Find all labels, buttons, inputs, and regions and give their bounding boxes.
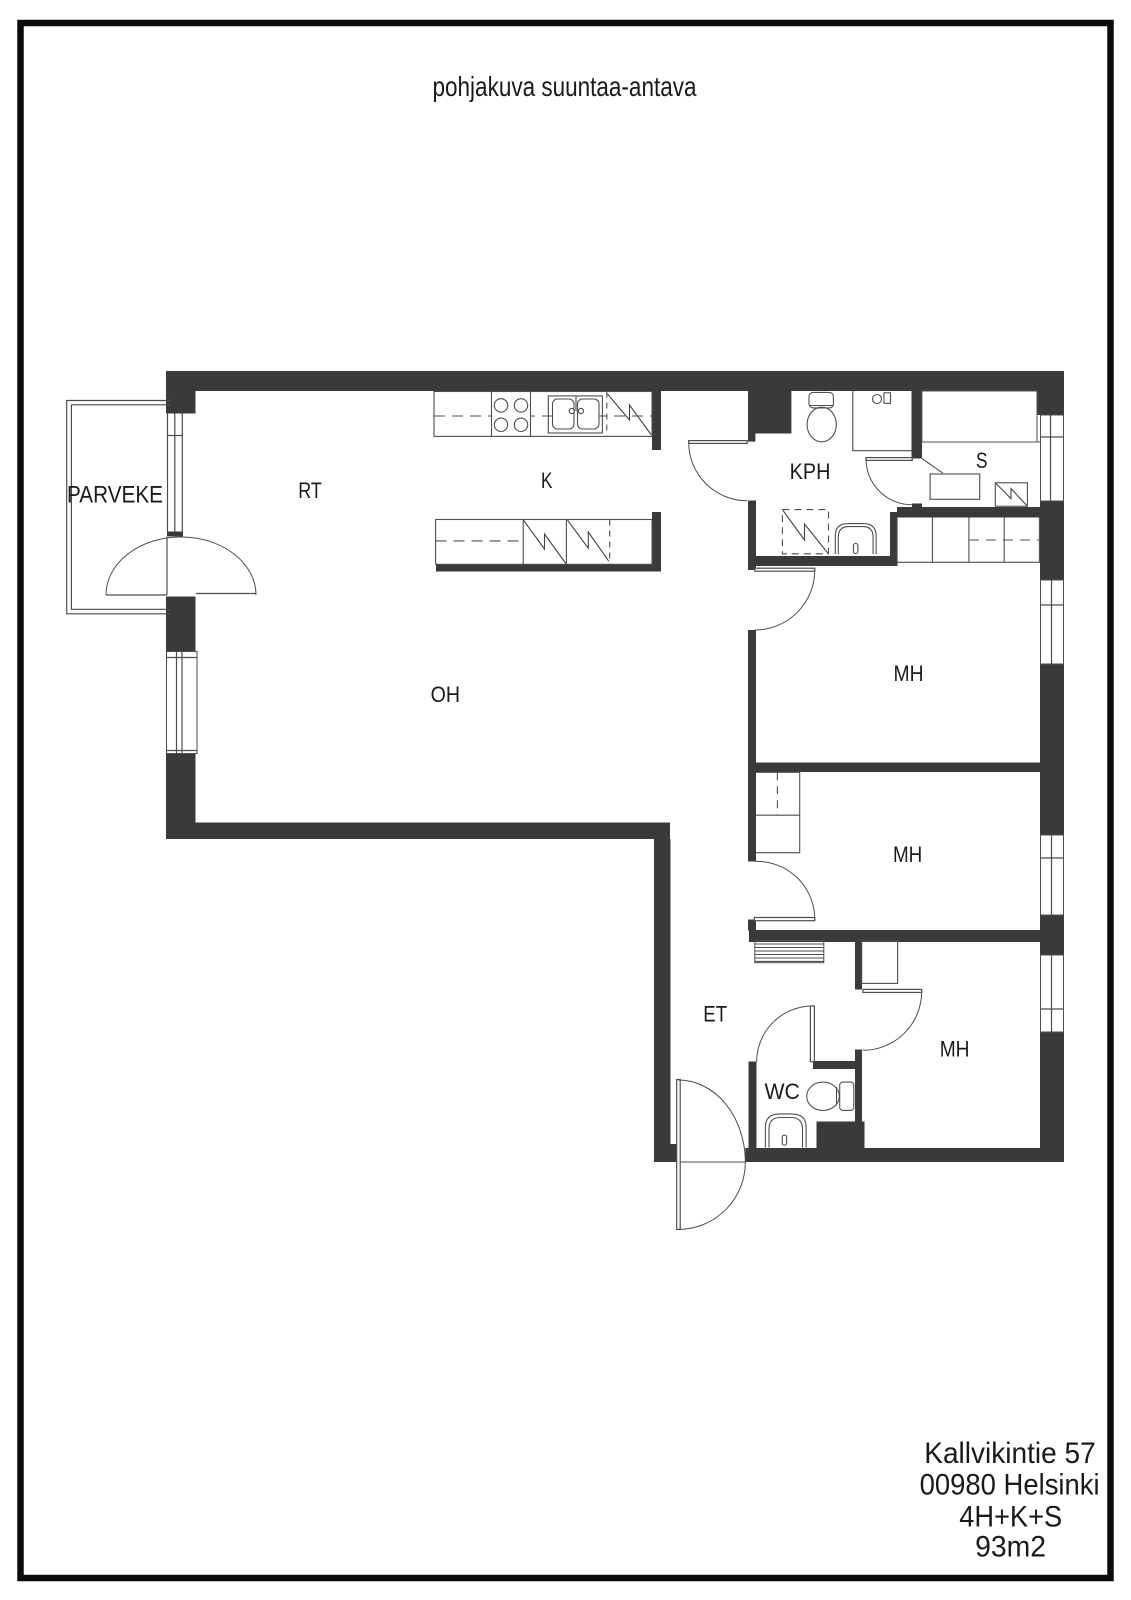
svg-text:K: K [541, 468, 552, 493]
svg-text:4H+K+S: 4H+K+S [959, 1501, 1062, 1534]
svg-text:93m2: 93m2 [975, 1530, 1046, 1563]
svg-text:PARVEKE: PARVEKE [67, 481, 163, 508]
svg-text:MH: MH [940, 1036, 970, 1061]
svg-text:MH: MH [894, 661, 924, 686]
svg-text:00980 Helsinki: 00980 Helsinki [920, 1468, 1100, 1501]
svg-text:MH: MH [893, 842, 922, 867]
svg-text:KPH: KPH [790, 459, 831, 484]
svg-text:RT: RT [298, 478, 322, 503]
svg-text:S: S [976, 448, 988, 473]
svg-text:pohjakuva suuntaa-antava: pohjakuva suuntaa-antava [433, 71, 697, 102]
svg-text:Kallvikintie 57: Kallvikintie 57 [924, 1437, 1096, 1470]
svg-text:WC: WC [765, 1079, 800, 1104]
svg-text:OH: OH [431, 682, 460, 707]
svg-text:ET: ET [703, 1002, 727, 1027]
